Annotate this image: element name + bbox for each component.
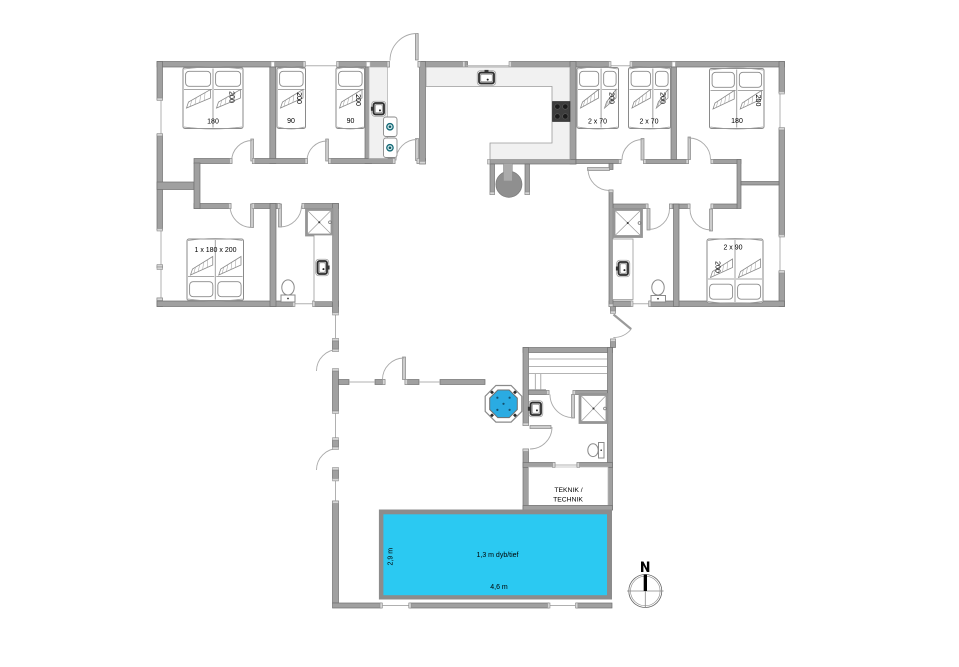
svg-text:200: 200 bbox=[659, 92, 666, 104]
svg-text:2 x 70: 2 x 70 bbox=[588, 119, 607, 126]
svg-text:200: 200 bbox=[714, 261, 721, 273]
svg-text:200: 200 bbox=[295, 92, 302, 104]
svg-text:180: 180 bbox=[731, 118, 743, 125]
svg-text:90: 90 bbox=[347, 118, 355, 125]
svg-text:TECHNIK: TECHNIK bbox=[553, 497, 583, 504]
svg-text:2 x 90: 2 x 90 bbox=[723, 245, 742, 252]
svg-text:2 x 70: 2 x 70 bbox=[639, 119, 658, 126]
svg-text:1,3 m dyb/tief: 1,3 m dyb/tief bbox=[476, 552, 518, 559]
svg-text:90: 90 bbox=[287, 118, 295, 125]
svg-text:1 x 180 x 200: 1 x 180 x 200 bbox=[194, 247, 236, 254]
svg-text:200: 200 bbox=[608, 92, 615, 104]
svg-text:200: 200 bbox=[354, 94, 361, 106]
svg-text:4,6 m: 4,6 m bbox=[490, 584, 508, 591]
svg-text:180: 180 bbox=[207, 119, 219, 126]
svg-text:200: 200 bbox=[754, 95, 761, 107]
svg-text:TEKNIK /: TEKNIK / bbox=[554, 487, 582, 494]
svg-text:200: 200 bbox=[228, 91, 235, 103]
svg-text:2,9 m: 2,9 m bbox=[388, 548, 395, 566]
